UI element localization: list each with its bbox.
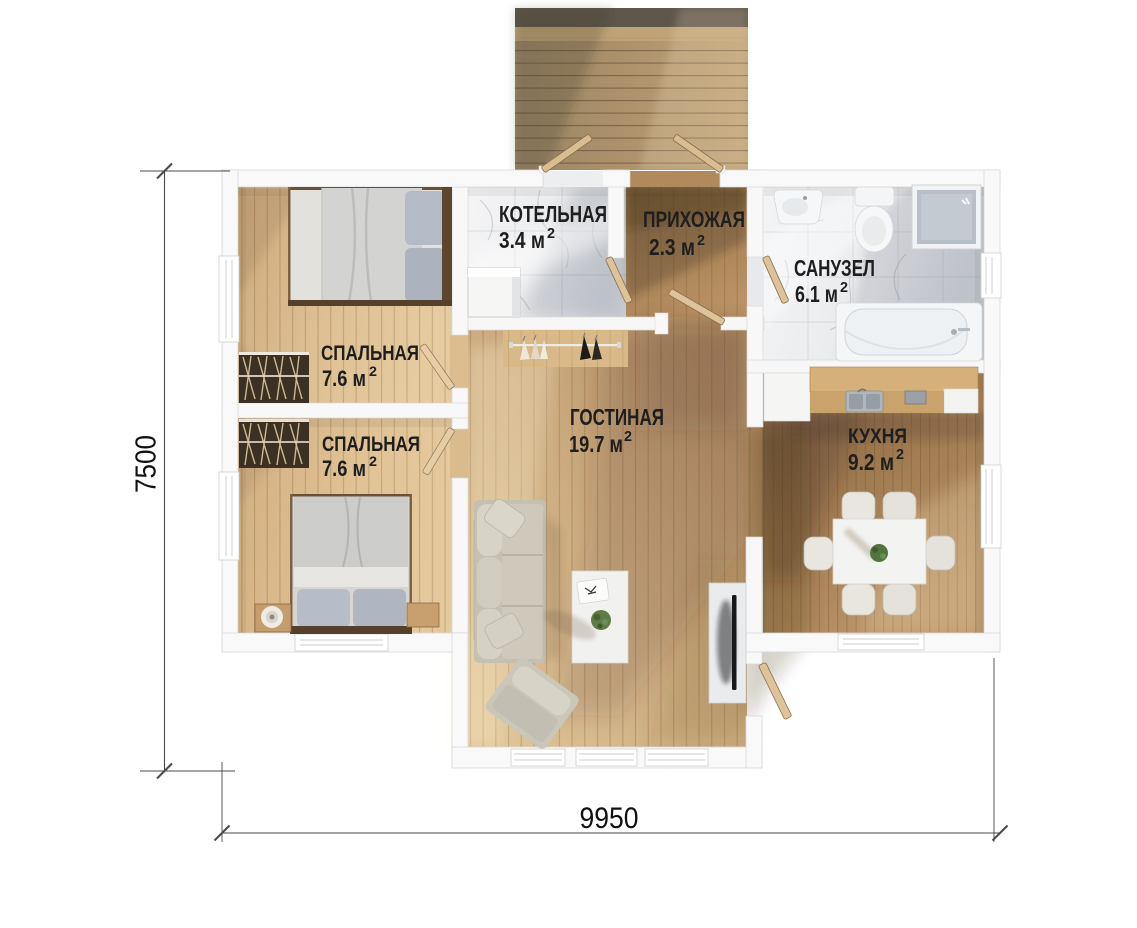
svg-text:2: 2: [624, 428, 632, 445]
svg-text:2: 2: [896, 446, 904, 463]
svg-text:7.6 м: 7.6 м: [322, 366, 366, 391]
svg-text:2: 2: [840, 279, 848, 296]
svg-text:КОТЕЛЬНАЯ: КОТЕЛЬНАЯ: [499, 201, 607, 227]
svg-text:6.1 м: 6.1 м: [795, 281, 838, 307]
svg-text:ПРИХОЖАЯ: ПРИХОЖАЯ: [643, 207, 745, 232]
svg-text:2: 2: [547, 225, 555, 242]
svg-text:7.6 м: 7.6 м: [322, 456, 366, 481]
svg-text:2: 2: [369, 453, 377, 469]
svg-text:СПАЛЬНАЯ: СПАЛЬНАЯ: [321, 342, 419, 365]
svg-text:2: 2: [369, 363, 377, 379]
svg-text:7500: 7500: [131, 435, 163, 493]
svg-text:2.3 м: 2.3 м: [649, 234, 695, 260]
svg-text:КУХНЯ: КУХНЯ: [848, 424, 907, 448]
svg-text:2: 2: [697, 232, 705, 249]
svg-text:9950: 9950: [580, 802, 639, 835]
svg-text:19.7 м: 19.7 м: [569, 431, 623, 457]
svg-text:9.2 м: 9.2 м: [848, 449, 894, 475]
svg-text:САНУЗЕЛ: САНУЗЕЛ: [794, 255, 875, 281]
svg-text:ГОСТИНАЯ: ГОСТИНАЯ: [570, 404, 664, 430]
svg-text:3.4 м: 3.4 м: [499, 227, 545, 253]
